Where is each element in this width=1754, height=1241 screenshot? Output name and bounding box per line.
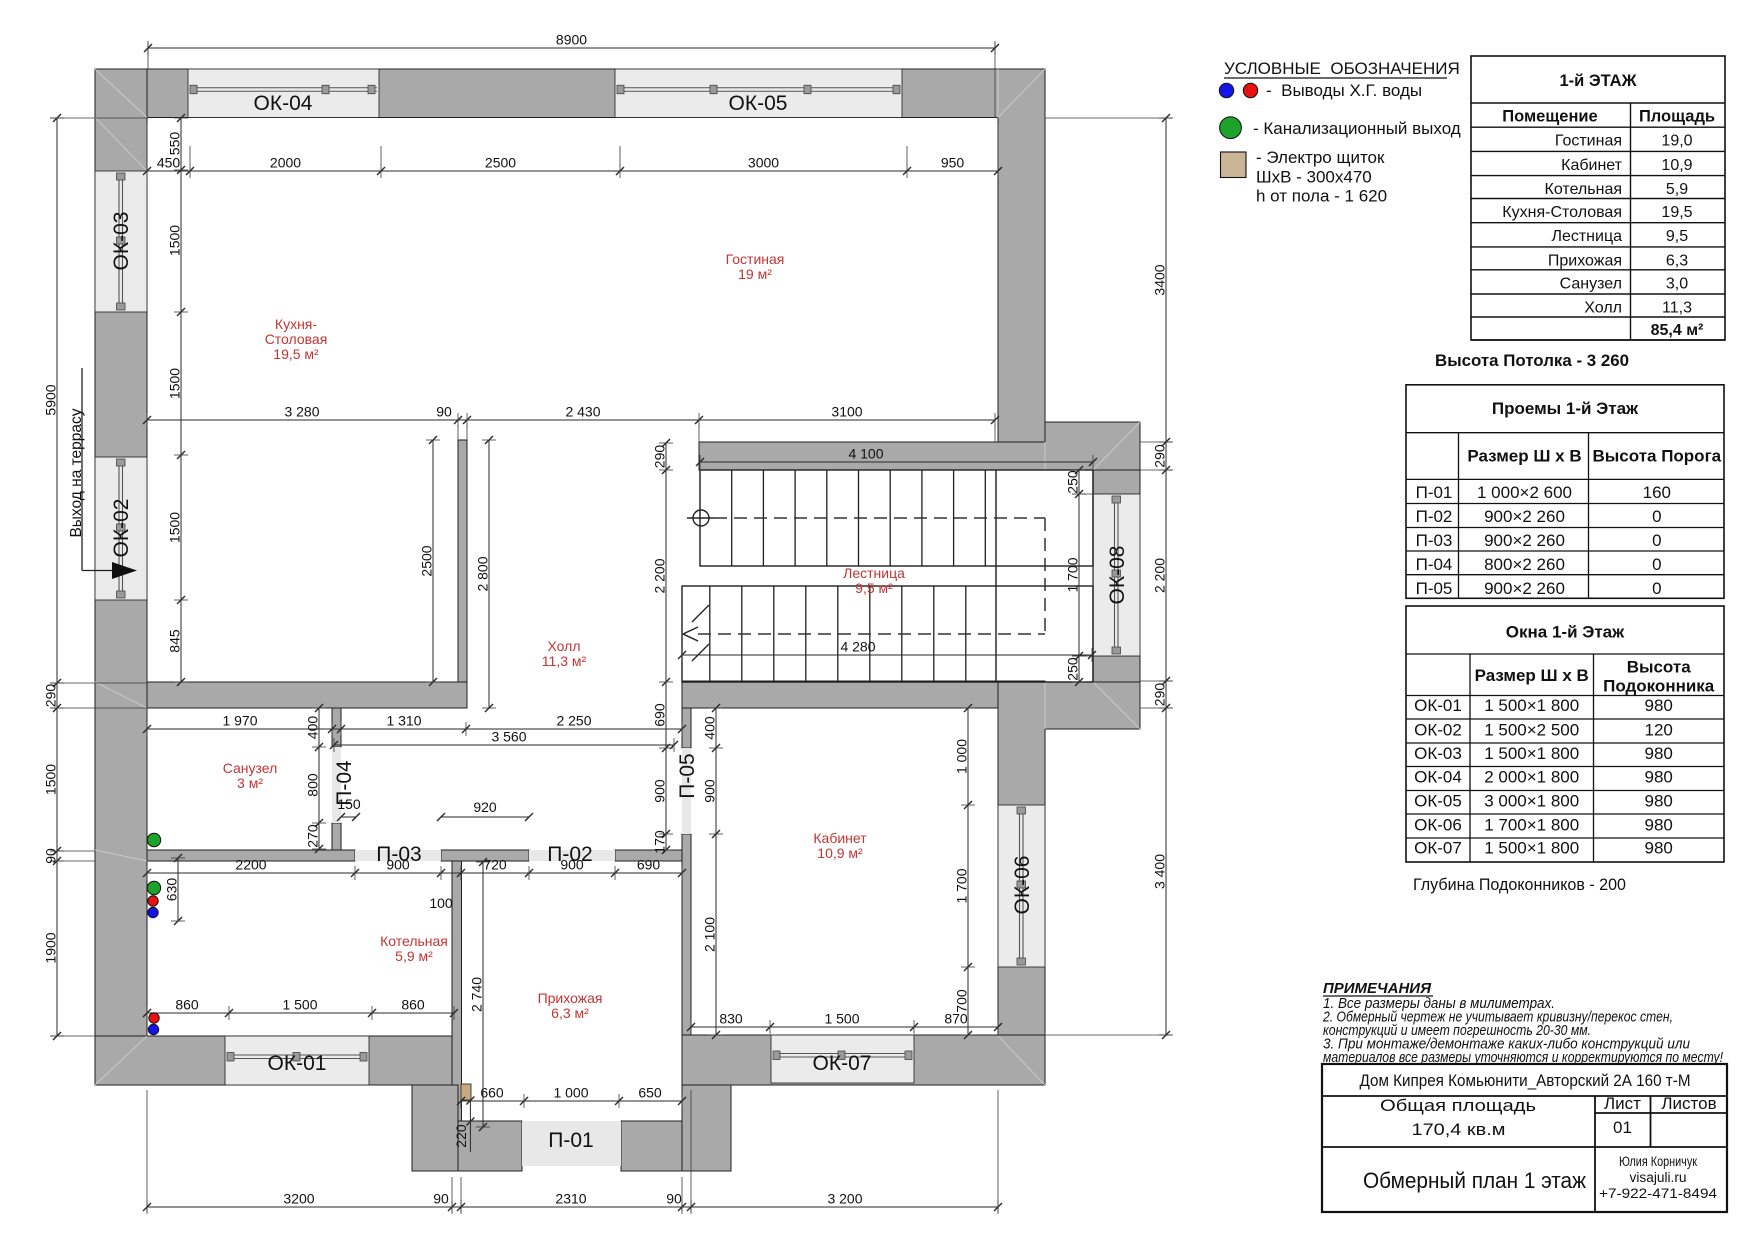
svg-text:19 м²: 19 м² <box>738 266 772 282</box>
svg-text:Глубина Подоконников - 200: Глубина Подоконников - 200 <box>1413 875 1626 894</box>
svg-text:Гостиная: Гостиная <box>1555 133 1622 150</box>
svg-text:860: 860 <box>401 997 425 1013</box>
svg-text:3000: 3000 <box>748 155 779 171</box>
svg-text:Площадь: Площадь <box>1639 108 1715 126</box>
svg-text:980: 980 <box>1645 744 1673 763</box>
svg-text:1500: 1500 <box>167 225 183 256</box>
svg-text:Листов: Листов <box>1661 1094 1716 1113</box>
svg-text:1 700: 1 700 <box>954 868 970 903</box>
svg-text:ОК-02: ОК-02 <box>1414 721 1462 740</box>
svg-text:450: 450 <box>157 155 181 171</box>
svg-text:290: 290 <box>1152 683 1168 707</box>
svg-text:250: 250 <box>1065 470 1081 494</box>
svg-text:1 310: 1 310 <box>386 713 421 729</box>
svg-text:6,3 м²: 6,3 м² <box>551 1005 589 1021</box>
svg-text:Высота Потолка - 3 260: Высота Потолка - 3 260 <box>1435 351 1629 370</box>
svg-text:1 000: 1 000 <box>553 1085 588 1101</box>
svg-text:90: 90 <box>43 848 59 864</box>
svg-text:Размер Ш х В: Размер Ш х В <box>1467 447 1581 466</box>
svg-text:0: 0 <box>1652 555 1661 574</box>
svg-text:6,3: 6,3 <box>1666 252 1688 269</box>
svg-text:Прихожая: Прихожая <box>1548 252 1622 269</box>
svg-text:250: 250 <box>1065 657 1081 681</box>
svg-text:+7-922-471-8494: +7-922-471-8494 <box>1599 1186 1718 1201</box>
svg-text:ОК-02: ОК-02 <box>110 499 133 558</box>
svg-text:900×2 260: 900×2 260 <box>1484 507 1565 526</box>
svg-text:Котельная: Котельная <box>380 933 448 949</box>
svg-text:2000: 2000 <box>270 155 301 171</box>
svg-text:3400: 3400 <box>1152 264 1168 295</box>
svg-text:Котельная: Котельная <box>1545 181 1622 198</box>
svg-text:2 000×1 800: 2 000×1 800 <box>1484 768 1579 787</box>
svg-text:1 700×1 800: 1 700×1 800 <box>1484 816 1579 835</box>
svg-text:400: 400 <box>702 716 718 740</box>
svg-text:Общая площадь: Общая площадь <box>1380 1096 1536 1115</box>
svg-text:- Выводы Х.Г. воды: - Выводы Х.Г. воды <box>1266 81 1422 100</box>
svg-text:5,9 м²: 5,9 м² <box>395 948 433 964</box>
svg-text:9,5: 9,5 <box>1666 228 1688 245</box>
svg-text:290: 290 <box>43 684 59 708</box>
svg-text:visajuli.ru: visajuli.ru <box>1630 1170 1687 1185</box>
svg-text:19,0: 19,0 <box>1661 133 1692 150</box>
svg-text:01: 01 <box>1613 1118 1632 1137</box>
svg-text:ОК-03: ОК-03 <box>1414 744 1462 763</box>
svg-text:19,5: 19,5 <box>1661 204 1692 221</box>
svg-text:3 000×1 800: 3 000×1 800 <box>1484 792 1579 811</box>
svg-text:630: 630 <box>164 878 180 902</box>
svg-text:2 800: 2 800 <box>475 556 491 591</box>
svg-text:3100: 3100 <box>831 404 862 420</box>
svg-text:120: 120 <box>1645 721 1673 740</box>
svg-text:УСЛОВНЫЕ ОБОЗНАЧЕНИЯ: УСЛОВНЫЕ ОБОЗНАЧЕНИЯ <box>1224 59 1460 78</box>
svg-text:1 500×1 800: 1 500×1 800 <box>1484 839 1579 858</box>
svg-text:3 200: 3 200 <box>827 1191 862 1207</box>
svg-text:3 280: 3 280 <box>284 404 319 420</box>
svg-text:980: 980 <box>1645 768 1673 787</box>
svg-text:4 100: 4 100 <box>848 446 883 462</box>
svg-text:Высота: Высота <box>1627 658 1692 677</box>
svg-text:2 430: 2 430 <box>565 404 600 420</box>
svg-text:950: 950 <box>941 155 965 171</box>
svg-text:1 000×2 600: 1 000×2 600 <box>1477 483 1572 502</box>
svg-text:Кабинет: Кабинет <box>1561 157 1623 174</box>
svg-text:4 280: 4 280 <box>840 639 875 655</box>
svg-text:ОК-01: ОК-01 <box>1414 696 1462 715</box>
svg-text:- Электро щиток: - Электро щиток <box>1256 148 1385 167</box>
svg-text:1500: 1500 <box>43 764 59 795</box>
svg-text:Окна 1-й Этаж: Окна 1-й Этаж <box>1506 623 1625 642</box>
svg-text:860: 860 <box>175 997 199 1013</box>
svg-text:Кухня-Столовая: Кухня-Столовая <box>1502 204 1622 221</box>
svg-text:Прихожая: Прихожая <box>538 990 603 1006</box>
svg-text:1 500: 1 500 <box>824 1011 859 1027</box>
svg-text:Высота Порога: Высота Порога <box>1592 447 1721 466</box>
svg-text:5,9: 5,9 <box>1666 181 1688 198</box>
svg-text:650: 650 <box>638 1085 662 1101</box>
svg-text:270: 270 <box>305 824 321 848</box>
svg-text:1 000: 1 000 <box>954 739 970 774</box>
svg-text:1500: 1500 <box>167 368 183 399</box>
svg-text:220: 220 <box>453 1124 469 1148</box>
svg-text:0: 0 <box>1652 531 1661 550</box>
svg-text:Холл: Холл <box>548 638 581 654</box>
svg-text:Размер Ш х В: Размер Ш х В <box>1475 666 1589 685</box>
svg-text:170: 170 <box>652 830 668 854</box>
svg-text:2310: 2310 <box>555 1191 586 1207</box>
svg-text:90: 90 <box>433 1191 449 1207</box>
svg-text:П-01: П-01 <box>548 1129 593 1152</box>
svg-text:Подоконника: Подоконника <box>1603 677 1715 696</box>
svg-text:690: 690 <box>637 857 661 873</box>
svg-text:290: 290 <box>1152 444 1168 468</box>
svg-text:19,5 м²: 19,5 м² <box>273 346 319 362</box>
svg-text:ОК-01: ОК-01 <box>268 1052 327 1075</box>
svg-text:П-04: П-04 <box>1416 555 1453 574</box>
svg-text:ОК-05: ОК-05 <box>1414 792 1462 811</box>
svg-text:ОК-07: ОК-07 <box>813 1052 872 1075</box>
svg-text:800: 800 <box>305 773 321 797</box>
svg-text:0: 0 <box>1652 507 1661 526</box>
svg-text:П-03: П-03 <box>1416 531 1453 550</box>
svg-text:1500: 1500 <box>167 512 183 543</box>
svg-text:Кухня-: Кухня- <box>275 316 317 332</box>
svg-text:290: 290 <box>652 445 668 469</box>
svg-text:ШхВ - 300х470: ШхВ - 300х470 <box>1256 168 1372 187</box>
svg-text:2 200: 2 200 <box>1152 558 1168 593</box>
svg-text:0: 0 <box>1652 579 1661 598</box>
svg-text:Выход на террасу: Выход на террасу <box>68 408 85 537</box>
svg-text:830: 830 <box>719 1011 743 1027</box>
svg-text:980: 980 <box>1645 839 1673 858</box>
svg-text:11,3: 11,3 <box>1662 300 1692 317</box>
svg-text:ОК-06: ОК-06 <box>1011 856 1034 915</box>
svg-text:Проемы 1-й Этаж: Проемы 1-й Этаж <box>1492 399 1639 418</box>
svg-text:10,9: 10,9 <box>1661 157 1692 174</box>
svg-text:550: 550 <box>167 132 183 156</box>
svg-text:ОК-04: ОК-04 <box>1414 768 1462 787</box>
svg-text:ОК-04: ОК-04 <box>254 92 313 115</box>
svg-text:3 400: 3 400 <box>1152 854 1168 889</box>
svg-text:3 м²: 3 м² <box>237 775 263 791</box>
svg-text:ОК-06: ОК-06 <box>1414 816 1462 835</box>
svg-text:90: 90 <box>436 404 452 420</box>
svg-text:П-03: П-03 <box>376 843 421 866</box>
svg-text:980: 980 <box>1645 696 1673 715</box>
svg-text:170,4 кв.м: 170,4 кв.м <box>1412 1120 1506 1139</box>
svg-text:10,9 м²: 10,9 м² <box>817 845 863 861</box>
svg-text:П-05: П-05 <box>676 753 699 798</box>
svg-text:Столовая: Столовая <box>265 331 328 347</box>
svg-text:2200: 2200 <box>235 857 266 873</box>
svg-text:1 500×2 500: 1 500×2 500 <box>1484 721 1579 740</box>
svg-text:Гостиная: Гостиная <box>726 251 785 267</box>
svg-text:Обмерный план 1 этаж: Обмерный план 1 этаж <box>1363 1168 1586 1193</box>
svg-text:3,0: 3,0 <box>1666 275 1688 292</box>
svg-text:85,4 м²: 85,4 м² <box>1651 322 1704 339</box>
svg-text:Лестница: Лестница <box>843 565 905 581</box>
svg-text:9,5 м²: 9,5 м² <box>855 580 893 596</box>
svg-text:П-02: П-02 <box>1416 507 1453 526</box>
svg-text:Санузел: Санузел <box>223 760 278 776</box>
svg-text:2 250: 2 250 <box>556 713 591 729</box>
svg-text:Дом Кипрея Комьюнити_Авторский: Дом Кипрея Комьюнити_Авторский 2А 160 т-… <box>1360 1071 1691 1090</box>
svg-text:1 500: 1 500 <box>282 997 317 1013</box>
svg-text:900×2 260: 900×2 260 <box>1484 579 1565 598</box>
svg-text:2500: 2500 <box>419 545 435 576</box>
svg-text:845: 845 <box>167 629 183 653</box>
svg-text:Лестница: Лестница <box>1551 228 1622 245</box>
svg-text:400: 400 <box>305 716 321 740</box>
svg-text:1 500×1 800: 1 500×1 800 <box>1484 744 1579 763</box>
svg-text:П-04: П-04 <box>333 760 356 806</box>
svg-text:Помещение: Помещение <box>1502 108 1598 126</box>
svg-text:h от пола - 1 620: h от пола - 1 620 <box>1256 187 1387 206</box>
svg-text:Санузел: Санузел <box>1560 275 1622 292</box>
svg-text:Лист: Лист <box>1604 1094 1641 1113</box>
svg-text:8900: 8900 <box>556 32 587 48</box>
svg-text:1 700: 1 700 <box>1065 557 1081 592</box>
svg-text:ОК-05: ОК-05 <box>729 92 788 115</box>
svg-text:ОК-07: ОК-07 <box>1414 839 1462 858</box>
svg-text:660: 660 <box>480 1085 504 1101</box>
svg-text:1 970: 1 970 <box>222 713 257 729</box>
svg-text:Кабинет: Кабинет <box>813 830 867 846</box>
svg-text:2500: 2500 <box>485 155 516 171</box>
svg-text:2 200: 2 200 <box>652 558 668 593</box>
svg-text:П-01: П-01 <box>1416 483 1453 502</box>
svg-text:690: 690 <box>652 703 668 727</box>
svg-text:900×2 260: 900×2 260 <box>1484 531 1565 550</box>
svg-text:2 740: 2 740 <box>469 977 485 1012</box>
svg-text:11,3 м²: 11,3 м² <box>542 653 587 669</box>
svg-text:5900: 5900 <box>43 384 59 415</box>
svg-text:1900: 1900 <box>43 932 59 963</box>
svg-text:3200: 3200 <box>283 1191 314 1207</box>
svg-text:ОК-08: ОК-08 <box>1106 546 1129 605</box>
svg-text:3 560: 3 560 <box>491 729 526 745</box>
svg-text:ОК-03: ОК-03 <box>110 212 133 271</box>
svg-text:900: 900 <box>702 779 718 803</box>
svg-text:2 100: 2 100 <box>702 917 718 952</box>
svg-text:П-02: П-02 <box>547 843 592 866</box>
svg-text:160: 160 <box>1643 483 1671 502</box>
svg-text:700: 700 <box>954 989 970 1013</box>
svg-text:1 500×1 800: 1 500×1 800 <box>1484 696 1579 715</box>
svg-text:1-й ЭТАЖ: 1-й ЭТАЖ <box>1559 72 1636 90</box>
svg-text:920: 920 <box>473 799 497 815</box>
svg-text:- Канализационный выход: - Канализационный выход <box>1253 119 1461 138</box>
svg-text:Холл: Холл <box>1584 300 1622 317</box>
svg-text:П-05: П-05 <box>1416 579 1453 598</box>
svg-text:90: 90 <box>666 1191 682 1207</box>
svg-text:980: 980 <box>1645 792 1673 811</box>
svg-text:900: 900 <box>652 779 668 803</box>
svg-text:800×2 260: 800×2 260 <box>1484 555 1565 574</box>
svg-text:Юлия Корничук: Юлия Корничук <box>1619 1154 1697 1169</box>
svg-text:100: 100 <box>429 895 453 911</box>
svg-text:980: 980 <box>1645 816 1673 835</box>
